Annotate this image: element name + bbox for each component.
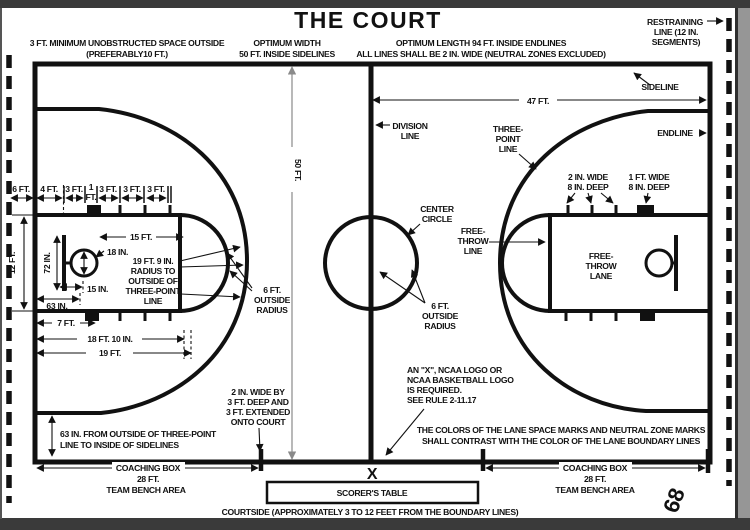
label-free-throw-line-3: LINE — [464, 246, 483, 256]
label-28ft-left: 28 FT. — [137, 474, 159, 484]
label-6ft-radius-left-1: 6 FT. — [263, 285, 281, 295]
dim-50ft: 50 FT. — [293, 159, 303, 181]
note-courtside: COURTSIDE (APPROXIMATELY 3 TO 12 FEET FR… — [222, 507, 519, 517]
label-marks-large-2: 8 IN. DEEP — [629, 182, 671, 192]
dim-19ft: 19 FT. — [99, 348, 121, 358]
label-division-line-1: DIVISION — [392, 121, 427, 131]
label-radius-1: 19 FT. 9 IN. — [133, 256, 174, 266]
note-unobstructed-1: 3 FT. MINIMUM UNOBSTRUCTED SPACE OUTSIDE — [30, 38, 225, 48]
label-center-circle-1: CENTER — [420, 204, 455, 214]
label-6ft-radius-left-3: RADIUS — [256, 305, 288, 315]
dim-3ft: 3 FT. — [65, 184, 83, 194]
page-frame — [0, 0, 750, 530]
note-2in-wide-1: 2 IN. WIDE BY — [231, 387, 285, 397]
label-free-throw-lane-3: LANE — [590, 271, 613, 281]
label-marks-small-2: 8 IN. DEEP — [568, 182, 610, 192]
dim-4ft: 4 FT. — [40, 184, 58, 194]
x-mark: X — [367, 466, 378, 483]
note-2in-wide-2: 3 FT. DEEP AND — [227, 397, 288, 407]
label-bench-left: TEAM BENCH AREA — [106, 485, 185, 495]
dim-47ft: 47 FT. — [527, 96, 549, 106]
court-diagram: THE COURT 3 FT. MINIMUM UNOBSTRUCTED SPA… — [0, 0, 750, 530]
dim-12ft: 12 FT. — [7, 252, 17, 274]
page-title: THE COURT — [294, 7, 442, 33]
dim-72in: 72 IN. — [42, 252, 52, 273]
note-colors-1: THE COLORS OF THE LANE SPACE MARKS AND N… — [417, 425, 706, 435]
label-bench-right: TEAM BENCH AREA — [555, 485, 634, 495]
label-three-point-3: LINE — [499, 144, 518, 154]
dim-15ft: 15 FT. — [130, 232, 152, 242]
label-free-throw-line-2: THROW — [458, 236, 490, 246]
note-optimum-width-1: OPTIMUM WIDTH — [253, 38, 320, 48]
label-marks-small-1: 2 IN. WIDE — [568, 172, 609, 182]
dim-1ft-b: FT. — [85, 192, 96, 202]
label-scorers-table: SCORER'S TABLE — [337, 488, 408, 498]
dim-63in: 63 IN. — [46, 301, 67, 311]
note-2in-wide-3: 3 FT. EXTENDED — [226, 407, 290, 417]
note-colors-2: SHALL CONTRAST WITH THE COLOR OF THE LAN… — [422, 436, 701, 446]
label-center-circle-2: CIRCLE — [422, 214, 453, 224]
note-unobstructed-2: (PREFERABLY10 FT.) — [86, 49, 168, 59]
note-ncaa-2: NCAA BASKETBALL LOGO — [407, 375, 514, 385]
dim-18in: 18 IN. — [107, 247, 128, 257]
dim-1ft-a: 1 — [89, 182, 94, 192]
neutral-zone-mark — [85, 311, 99, 321]
dim-7ft: 7 FT. — [57, 318, 75, 328]
label-radius-3: OUTSIDE OF — [128, 276, 178, 286]
note-63in-outside-2: LINE TO INSIDE OF SIDELINES — [60, 440, 179, 450]
label-radius-2: RADIUS TO — [131, 266, 176, 276]
label-28ft-right: 28 FT. — [584, 474, 606, 484]
dim-3ft: 3 FT. — [99, 184, 117, 194]
label-free-throw-lane-1: FREE- — [589, 251, 614, 261]
label-division-line-2: LINE — [401, 131, 420, 141]
dim-15in: 15 IN. — [87, 284, 108, 294]
dim-3ft: 3 FT. — [123, 184, 141, 194]
note-restraining-3: SEGMENTS) — [652, 37, 701, 47]
note-ncaa-4: SEE RULE 2-11.17 — [407, 395, 477, 405]
note-2in-wide-4: ONTO COURT — [231, 417, 287, 427]
label-radius-5: LINE — [144, 296, 163, 306]
dim-3ft: 3 FT. — [147, 184, 165, 194]
label-three-point-1: THREE- — [493, 124, 524, 134]
note-optimum-length-1: OPTIMUM LENGTH 94 FT. INSIDE ENDLINES — [396, 38, 567, 48]
dim-18ft10in: 18 FT. 10 IN. — [87, 334, 132, 344]
note-restraining-1: RESTRAINING — [647, 17, 704, 27]
neutral-zone-mark — [637, 205, 654, 215]
label-6ft-radius-center-2: OUTSIDE — [422, 311, 459, 321]
scanned-rulebook-page: THE COURT 3 FT. MINIMUM UNOBSTRUCTED SPA… — [0, 0, 750, 530]
label-free-throw-line-1: FREE- — [461, 226, 486, 236]
neutral-zone-mark — [87, 205, 101, 215]
label-coaching-box-left: COACHING BOX — [116, 463, 181, 473]
label-marks-large-1: 1 FT. WIDE — [629, 172, 670, 182]
label-6ft-radius-center-3: RADIUS — [424, 321, 456, 331]
note-restraining-2: LINE (12 IN. — [654, 27, 698, 37]
note-63in-outside-1: 63 IN. FROM OUTSIDE OF THREE-POINT — [60, 429, 217, 439]
label-three-point-2: POINT — [496, 134, 522, 144]
note-optimum-width-2: 50 FT. INSIDE SIDELINES — [239, 49, 335, 59]
label-6ft-radius-left-2: OUTSIDE — [254, 295, 291, 305]
label-radius-4: THREE-POINT — [126, 286, 182, 296]
neutral-zone-mark — [640, 311, 655, 321]
note-optimum-length-2: ALL LINES SHALL BE 2 IN. WIDE (NEUTRAL Z… — [356, 49, 606, 59]
label-6ft-radius-center-1: 6 FT. — [431, 301, 449, 311]
label-endline: ENDLINE — [657, 128, 693, 138]
dim-6ft: 6 FT. — [12, 184, 30, 194]
label-coaching-box-right: COACHING BOX — [563, 463, 628, 473]
label-free-throw-lane-2: THROW — [586, 261, 618, 271]
note-ncaa-1: AN "X", NCAA LOGO OR — [407, 365, 503, 375]
note-ncaa-3: IS REQUIRED. — [407, 385, 462, 395]
label-sideline: SIDELINE — [641, 82, 679, 92]
